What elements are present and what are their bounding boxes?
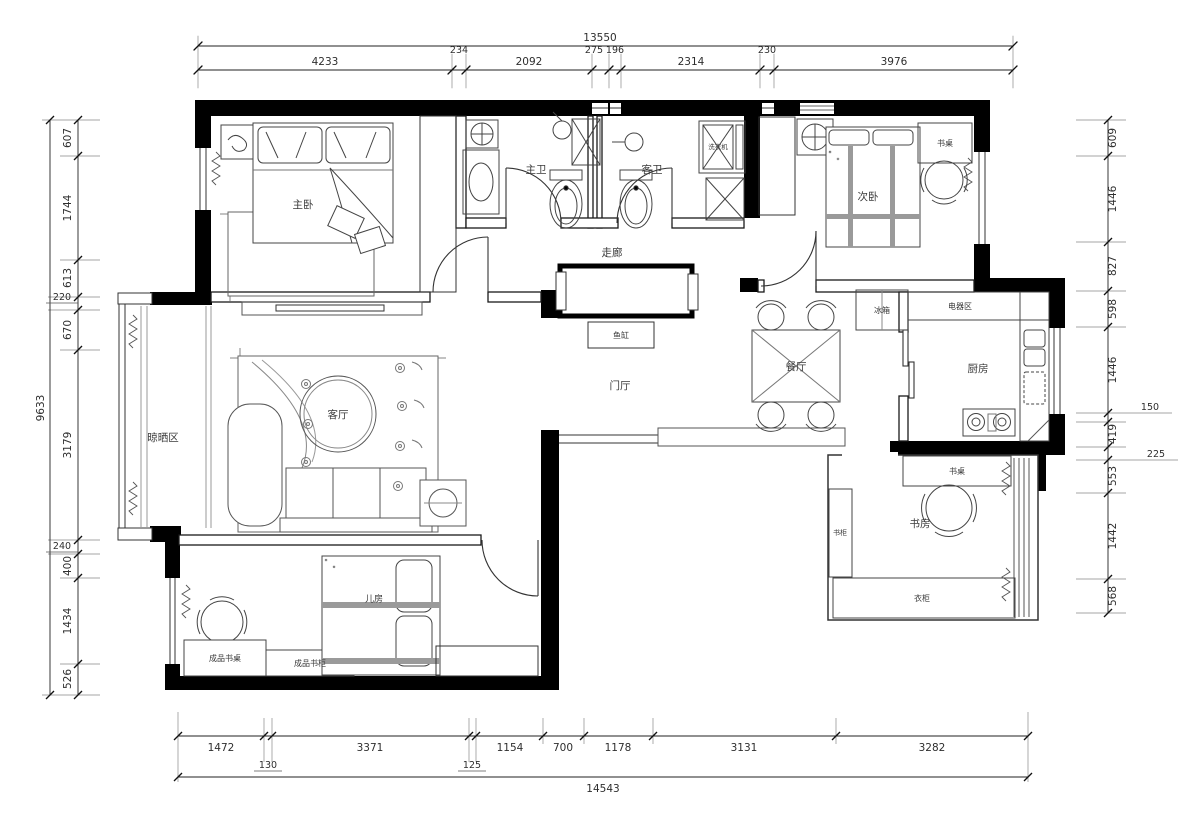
toilet-tank: [550, 170, 582, 180]
dim-left-seg: 670: [62, 320, 74, 340]
dim-bottom-seg: 125: [463, 760, 481, 771]
dim-left-seg: 613: [62, 268, 74, 288]
room-living: [228, 348, 466, 532]
room-second-bedroom: [759, 117, 972, 247]
kids-bookcase-label: 成品书柜: [294, 658, 326, 668]
dim-top-overall: 13550: [583, 32, 616, 44]
dim-top-seg: 196: [606, 45, 624, 56]
dim-bottom-seg: 1178: [605, 742, 632, 754]
chair: [758, 402, 784, 428]
washing-machine-label: 洗衣机: [708, 142, 728, 151]
desk-label: 书桌: [937, 138, 953, 148]
closet: [759, 117, 795, 215]
sofa-back: [280, 518, 432, 532]
dimension-chain-right: 609 1446 827 598 1446 150 419 225 553 14…: [1076, 116, 1178, 617]
dim-bottom-seg: 3282: [919, 742, 946, 754]
heater-coil-icon: [129, 315, 137, 348]
appliance-area-label: 电器区: [948, 301, 972, 311]
room-guest-bath: [612, 121, 745, 228]
stove: [963, 409, 1015, 436]
dim-left-seg: 526: [62, 669, 74, 689]
dim-bottom-seg: 130: [259, 760, 277, 771]
tv: [276, 305, 384, 311]
sink-bowl: [1024, 349, 1045, 366]
bath-vanity: [463, 150, 499, 214]
dim-right-seg: 1446: [1107, 185, 1119, 212]
dimension-chain-bottom: 1472 130 3371 125 1154 700 1178 3131 328…: [174, 712, 1032, 795]
floor-plan-svg: 13550 4233 234 2092 275 196 2314 230 397…: [0, 0, 1200, 820]
chair: [758, 304, 784, 330]
heater-coil-icon: [212, 152, 220, 185]
chair: [808, 304, 834, 330]
fridge-label: 冰箱: [874, 305, 890, 315]
burner: [968, 414, 985, 431]
heater-coil-icon: [182, 585, 190, 618]
dim-right-seg: 225: [1147, 449, 1165, 460]
dim-right-seg: 568: [1107, 586, 1119, 606]
chair: [808, 402, 834, 428]
sink-bowl: [1024, 330, 1045, 347]
dim-right-seg: 553: [1107, 466, 1119, 486]
room-label-study: 书房: [910, 517, 931, 530]
dim-top-seg: 4233: [312, 56, 339, 68]
fish-tank-label: 鱼缸: [613, 330, 629, 340]
faucet-icon: [625, 133, 643, 151]
room-label-dining: 餐厅: [786, 360, 807, 373]
dim-right-seg: 150: [1141, 402, 1159, 413]
dim-right-seg: 609: [1107, 128, 1119, 148]
sink-basin: [469, 163, 493, 201]
dimension-chain-left: 607 1744 613 220 670 3179 240 400 1434 5…: [35, 116, 100, 699]
dim-bottom-seg: 1154: [497, 742, 524, 754]
dim-bottom-seg: 1472: [208, 742, 235, 754]
room-label-living: 客厅: [328, 408, 349, 421]
floor-plan-canvas: 13550 4233 234 2092 275 196 2314 230 397…: [0, 0, 1200, 820]
chair: [201, 601, 243, 643]
sofa-seat: [286, 468, 426, 518]
dim-right-seg: 827: [1107, 256, 1119, 276]
dim-top-seg: 3976: [881, 56, 908, 68]
study-wardrobe-label: 衣柜: [914, 593, 930, 603]
dim-right-seg: 1442: [1107, 523, 1119, 550]
shoe-cabinet: [560, 266, 692, 316]
room-label-kitchen: 厨房: [968, 362, 989, 375]
dim-right-seg: 1446: [1107, 356, 1119, 383]
dim-left-seg: 240: [53, 541, 71, 552]
doormat: [436, 646, 538, 676]
dim-right-seg: 419: [1107, 424, 1119, 444]
study-bookcase-label: 书柜: [833, 528, 847, 537]
nightstand: [221, 125, 255, 159]
room-label-guest-bath: 客卫: [642, 163, 663, 176]
dim-top-seg: 230: [758, 45, 776, 56]
room-master-bedroom: [220, 116, 456, 315]
dim-left-overall: 9633: [35, 395, 47, 422]
dim-top-seg: 2314: [678, 56, 705, 68]
dim-bottom-overall: 14543: [586, 783, 619, 795]
dim-left-seg: 400: [62, 556, 74, 576]
room-label-second-bedroom: 次卧: [858, 190, 879, 203]
phone-icon: [228, 135, 247, 151]
dim-right-seg: 598: [1107, 299, 1119, 319]
dim-top-seg: 2092: [516, 56, 543, 68]
chair: [925, 161, 963, 199]
room-label-master-bedroom: 主卧: [293, 198, 314, 211]
sofa-chaise: [228, 404, 282, 526]
dim-top-seg: 275: [585, 45, 603, 56]
dim-left-seg: 3179: [62, 432, 74, 459]
dim-top-seg: 234: [450, 45, 468, 56]
room-study: [828, 452, 1038, 620]
wardrobe: [420, 116, 456, 292]
kids-desk-label: 成品书桌: [209, 653, 241, 663]
dim-bottom-seg: 3131: [731, 742, 758, 754]
heater-coil-icon: [129, 482, 137, 515]
dim-left-seg: 607: [62, 128, 74, 148]
dim-left-seg: 1744: [62, 194, 74, 221]
dim-left-seg: 220: [53, 292, 71, 303]
room-label-kids: 儿房: [365, 593, 383, 605]
dimension-chain-top: 13550 4233 234 2092 275 196 2314 230 397…: [194, 32, 1017, 88]
cutting-board: [1024, 372, 1045, 404]
dim-bottom-seg: 700: [553, 742, 573, 754]
counter-appliances: [908, 292, 1049, 320]
study-desk-label: 书桌: [949, 466, 965, 476]
dim-bottom-seg: 3371: [357, 742, 384, 754]
room-label-drying-area: 晾晒区: [147, 431, 179, 444]
room-label-master-bath: 主卫: [526, 164, 547, 176]
room-label-foyer: 门厅: [610, 379, 631, 392]
room-label-corridor: 走廊: [602, 246, 623, 259]
dim-left-seg: 1434: [62, 607, 74, 634]
shower-head-icon: [553, 121, 571, 139]
